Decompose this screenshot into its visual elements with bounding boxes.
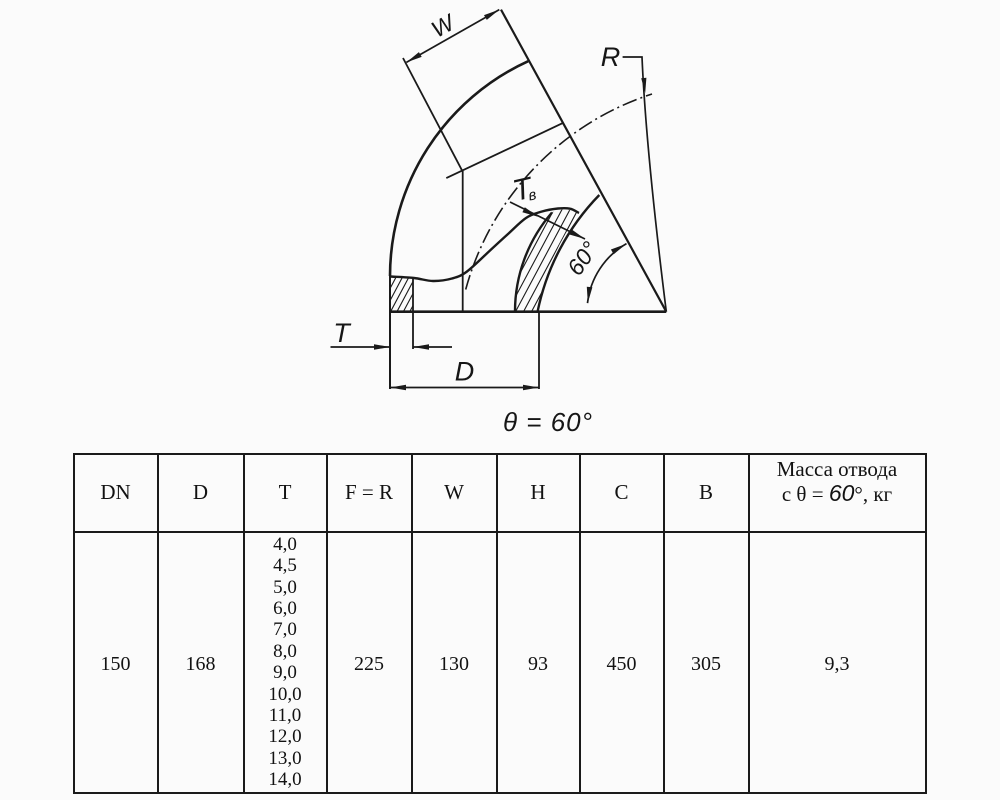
svg-text:W: W xyxy=(427,8,461,42)
svg-text:D: D xyxy=(455,357,475,387)
svg-text:T: T xyxy=(333,318,352,348)
svg-text:R: R xyxy=(601,42,621,72)
svg-text:θ = 60°: θ = 60° xyxy=(503,407,593,437)
